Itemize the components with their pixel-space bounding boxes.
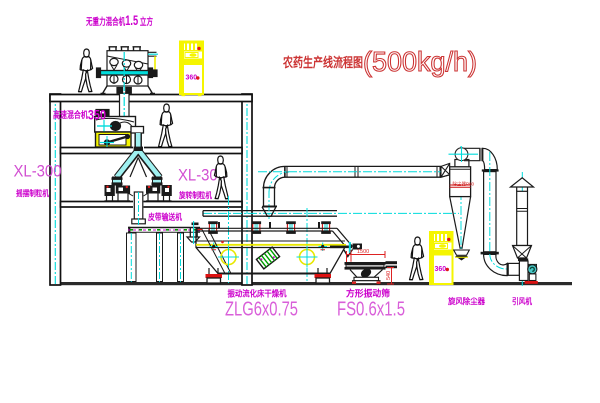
svg-text:旋转制粒机: 旋转制粒机 bbox=[178, 190, 212, 200]
svg-text:360: 360 bbox=[186, 75, 198, 82]
svg-text:ZLG6x0.75: ZLG6x0.75 bbox=[225, 299, 298, 321]
svg-text:农药生产线流程图: 农药生产线流程图 bbox=[282, 55, 363, 70]
svg-text:(500kg/h): (500kg/h) bbox=[363, 46, 477, 77]
svg-text:1500: 1500 bbox=[357, 249, 369, 255]
svg-text:引风机: 引风机 bbox=[512, 296, 532, 306]
svg-text:振动流化床干燥机: 振动流化床干燥机 bbox=[228, 289, 287, 299]
svg-text:XL-300: XL-300 bbox=[14, 162, 62, 181]
svg-text:360: 360 bbox=[435, 266, 447, 273]
svg-text:540: 540 bbox=[386, 271, 392, 280]
svg-text:除尘器P80: 除尘器P80 bbox=[453, 181, 475, 188]
svg-text:皮带输送机: 皮带输送机 bbox=[147, 212, 182, 222]
svg-text:FS0.6x1.5: FS0.6x1.5 bbox=[337, 299, 405, 321]
svg-text:方形振动筛: 方形振动筛 bbox=[346, 288, 390, 299]
svg-text:旋风除尘器: 旋风除尘器 bbox=[447, 296, 486, 306]
svg-text:摇摆制粒机: 摇摆制粒机 bbox=[16, 188, 49, 198]
